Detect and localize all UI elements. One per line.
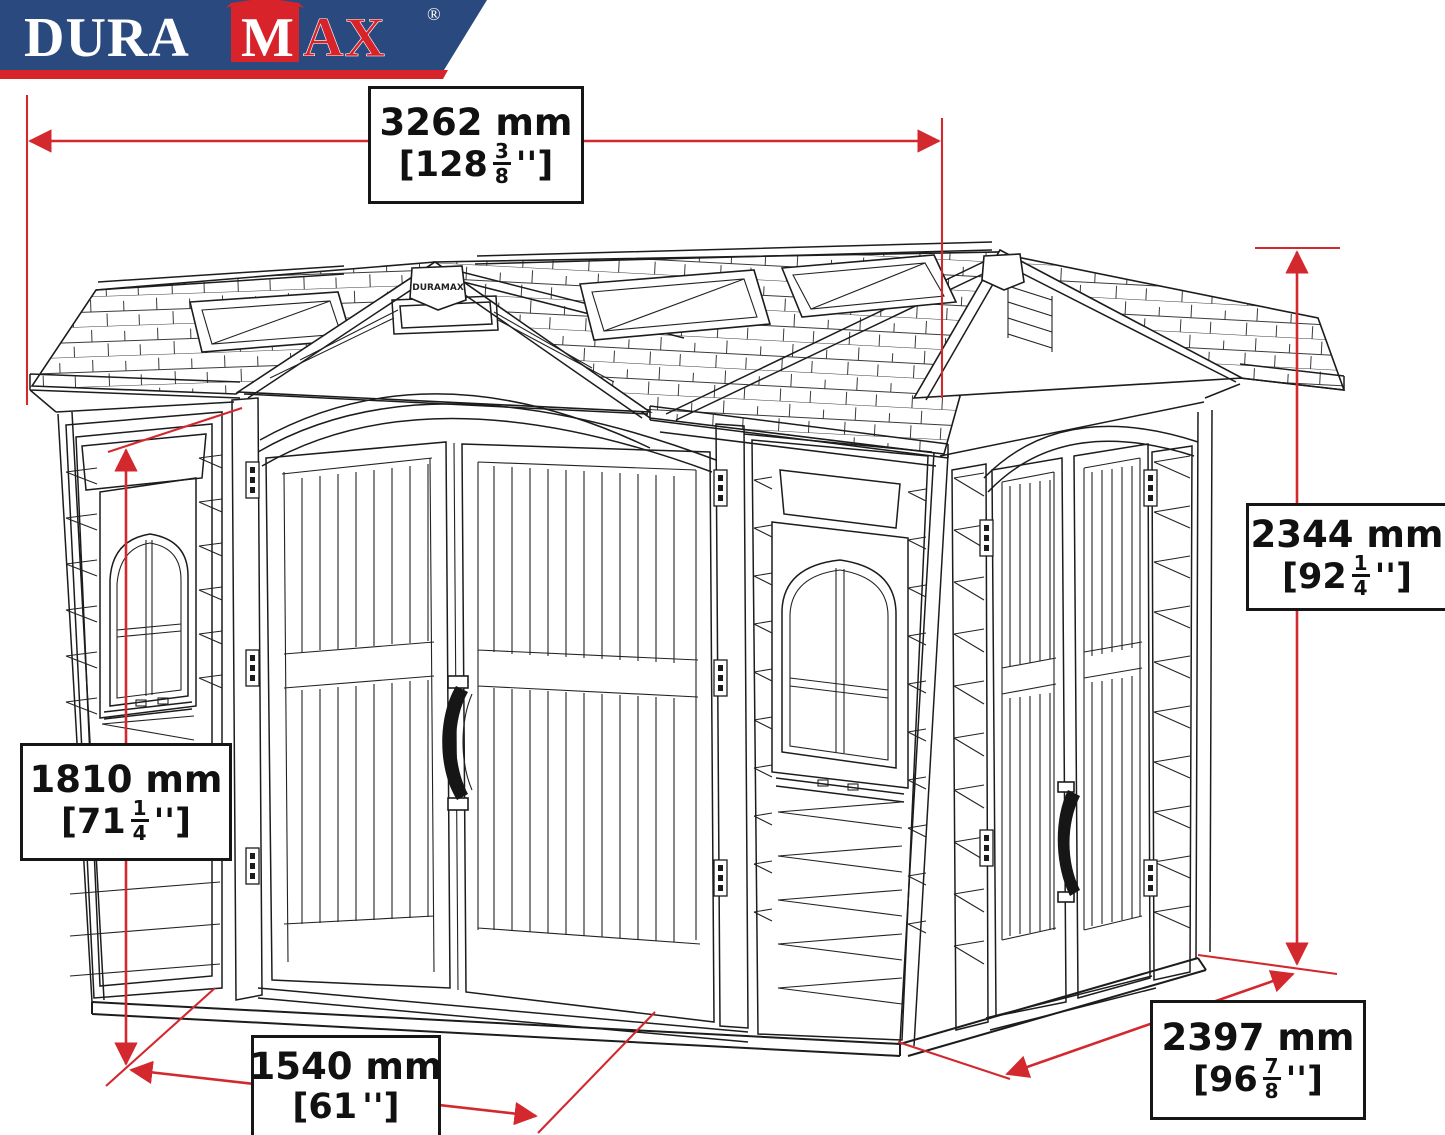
dimension-inch-value: [96 78 ''] [1193,1058,1323,1103]
inch-prefix: [96 [1193,1061,1258,1100]
hinge-icon [714,660,727,696]
logo-ax-text: AX [303,7,386,69]
fraction-denominator: 4 [1354,577,1368,598]
logo-m-text: M [241,7,294,69]
wall-frame [58,394,1212,1056]
dimension-mm-value: 2397 mm [1162,1017,1355,1058]
dimension-mm-value: 1810 mm [30,759,223,800]
dimension-box-door-width: 1540 mm [61 ''] [251,1035,441,1135]
dimension-inch-value: [71 14 ''] [61,800,191,845]
inch-suffix: ''] [154,803,191,842]
inch-fraction: 14 [1352,553,1370,598]
dimension-mm-value: 1540 mm [250,1046,443,1087]
door-side-right [1074,444,1150,998]
fraction-denominator: 4 [133,822,147,843]
door-bay-front [232,398,748,1028]
hinge-icon [1144,470,1157,506]
dimension-box-overall-width: 3262 mm [128 38 ''] [368,86,584,204]
hinge-icon [980,830,993,866]
dimension-box-overall-height: 2344 mm [92 14 ''] [1246,503,1445,611]
inch-fraction: 38 [493,141,511,186]
hinge-icon [980,520,993,556]
page-root: DURAMAX [0,0,1445,1135]
door-side-left [992,458,1066,1016]
hinge-icon [714,470,727,506]
door-front-right [462,444,714,1022]
fraction-numerator: 1 [131,798,149,822]
registered-mark: ® [427,4,441,24]
door-bay-side [952,426,1198,1030]
dimension-mm-value: 2344 mm [1251,514,1444,555]
front-window [772,522,908,802]
inch-suffix: ''] [516,146,553,185]
hinge-icon [714,860,727,896]
inch-suffix: ''] [1286,1061,1323,1100]
gable-plate-text: DURAMAX [412,283,464,293]
front-window-panel [752,440,928,1040]
dimension-inch-value: [61 ''] [292,1088,399,1127]
dim-ext-door-right [538,1012,655,1133]
inch-prefix: [92 [1282,558,1347,597]
logo-dura-text: DURA [24,7,190,69]
dim-ext-height-bottom [1198,955,1337,974]
fraction-denominator: 8 [1265,1080,1279,1101]
logo-underline [0,70,448,79]
dimension-inch-value: [128 38 ''] [399,143,553,188]
inch-suffix: ''] [362,1088,399,1127]
inch-prefix: [71 [61,803,126,842]
dimension-inch-value: [92 14 ''] [1282,555,1412,600]
inch-prefix: [61 [292,1088,357,1127]
hinge-icon [246,650,259,686]
hinge-icon [246,462,259,498]
fraction-numerator: 1 [1352,553,1370,577]
dimension-mm-value: 3262 mm [380,102,573,143]
fraction-numerator: 7 [1263,1056,1281,1080]
dimension-box-door-height: 1810 mm [71 14 ''] [20,743,232,861]
left-window [100,478,196,719]
left-window-panel [66,412,222,998]
inch-fraction: 14 [131,798,149,843]
dimension-box-depth: 2397 mm [96 78 ''] [1150,1000,1366,1120]
shed-line-drawing: DURAMAX [0,0,1445,1135]
hinge-icon [1144,860,1157,896]
side-louver-column-right [1152,446,1192,980]
fraction-numerator: 3 [493,141,511,165]
dim-ext-depth-front [898,1042,1010,1079]
inch-suffix: ''] [1375,558,1412,597]
front-panel-louvers [754,477,926,1004]
fraction-denominator: 8 [495,165,509,186]
inch-fraction: 78 [1263,1056,1281,1101]
hinge-icon [246,848,259,884]
inch-prefix: [128 [399,146,488,185]
door-handle-front-icon [442,676,472,810]
door-front-left [266,442,450,988]
